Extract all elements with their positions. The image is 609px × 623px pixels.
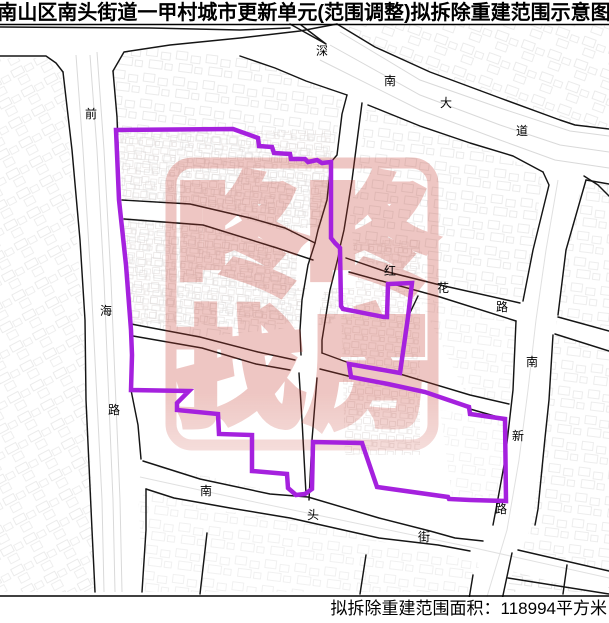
svg-text:路: 路 — [495, 501, 507, 516]
svg-text:海: 海 — [100, 303, 112, 318]
svg-text:大: 大 — [440, 96, 452, 110]
svg-text:路: 路 — [496, 299, 508, 314]
svg-text:咚: 咚 — [178, 169, 304, 308]
svg-text:房: 房 — [308, 302, 433, 441]
svg-text:花: 花 — [437, 280, 449, 295]
svg-text:深: 深 — [316, 44, 328, 58]
svg-text:南: 南 — [200, 483, 212, 498]
svg-text:咚: 咚 — [308, 169, 434, 308]
svg-text:找: 找 — [178, 302, 303, 441]
svg-text:新: 新 — [512, 428, 524, 443]
svg-text:路: 路 — [108, 402, 120, 417]
svg-text:南: 南 — [384, 73, 396, 88]
svg-text:前: 前 — [85, 106, 97, 121]
svg-text:道: 道 — [516, 124, 528, 138]
svg-text:头: 头 — [307, 508, 319, 522]
svg-text:南: 南 — [526, 354, 538, 369]
svg-text:街: 街 — [418, 530, 430, 544]
svg-text:南山区南头街道一甲村城市更新单元(范围调整)拟拆除重建范围示: 南山区南头街道一甲村城市更新单元(范围调整)拟拆除重建范围示意图 — [0, 0, 609, 24]
svg-text:红: 红 — [384, 263, 396, 278]
svg-text:拟拆除重建范围面积：118994平方米: 拟拆除重建范围面积：118994平方米 — [331, 599, 607, 618]
